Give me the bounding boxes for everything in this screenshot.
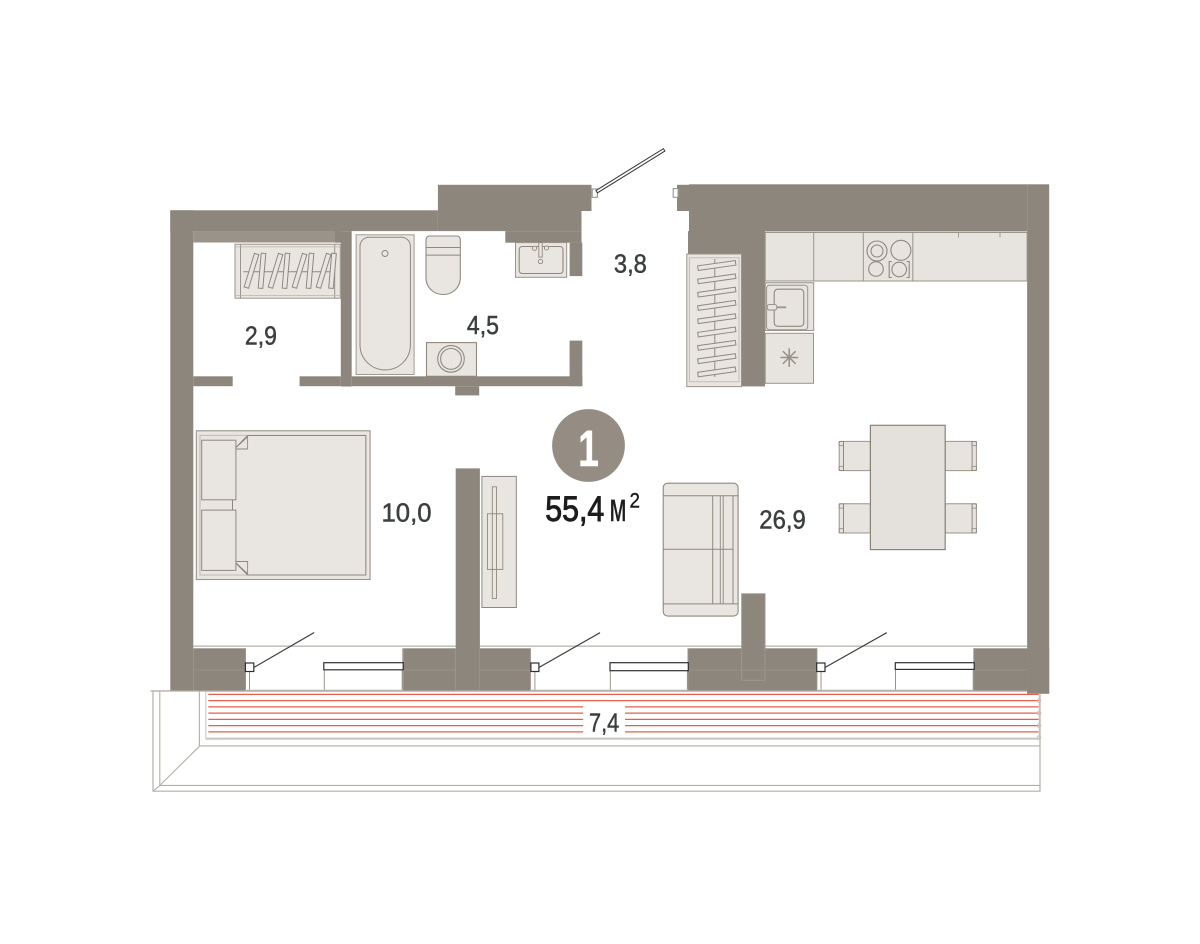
svg-text:1: 1 bbox=[578, 420, 599, 477]
svg-text:2,9: 2,9 bbox=[245, 321, 277, 351]
svg-text:7,4: 7,4 bbox=[589, 708, 619, 738]
svg-text:10,0: 10,0 bbox=[382, 497, 432, 527]
svg-text:2: 2 bbox=[630, 489, 641, 513]
svg-text:55,4: 55,4 bbox=[545, 490, 604, 529]
svg-text:м: м bbox=[610, 486, 627, 530]
svg-text:3,8: 3,8 bbox=[614, 248, 647, 278]
svg-text:4,5: 4,5 bbox=[467, 310, 499, 340]
svg-text:26,9: 26,9 bbox=[759, 504, 806, 534]
